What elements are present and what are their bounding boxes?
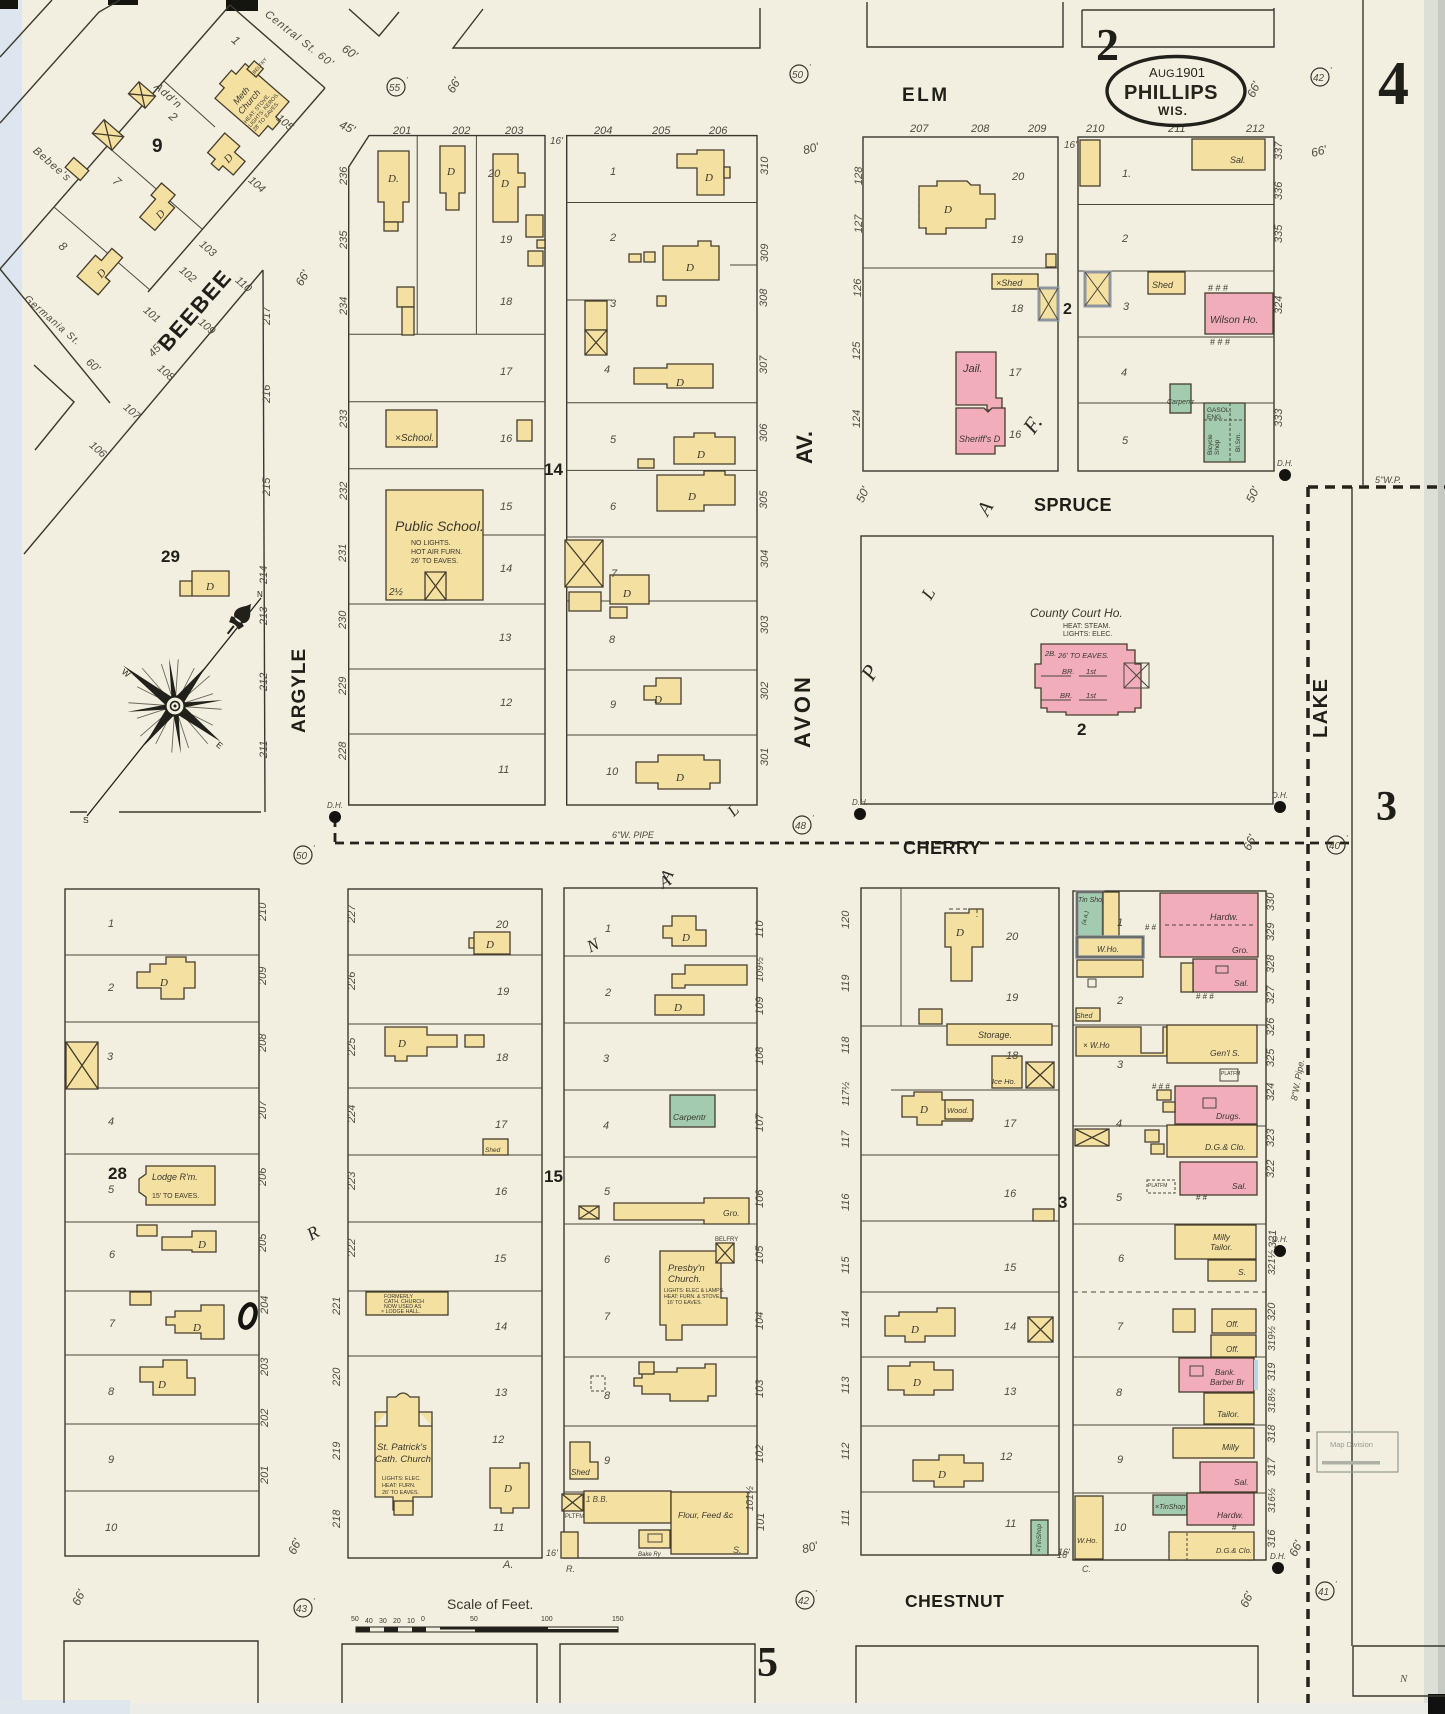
svg-text:220: 220 <box>331 1367 343 1387</box>
svg-text:×School.: ×School. <box>395 433 434 444</box>
svg-text:324: 324 <box>1273 296 1285 314</box>
svg-text:229: 229 <box>337 677 349 696</box>
svg-text:319½: 319½ <box>1267 1325 1278 1351</box>
svg-text:Gro.: Gro. <box>723 1208 740 1218</box>
svg-text:16': 16' <box>1058 1547 1070 1557</box>
svg-text:D: D <box>192 1322 201 1334</box>
svg-text:211: 211 <box>258 740 270 759</box>
svg-text:Sal.: Sal. <box>1232 1181 1247 1191</box>
svg-text:Map Division: Map Division <box>1330 1440 1373 1449</box>
svg-text:Bicycle: Bicycle <box>1207 434 1214 455</box>
svg-text:15: 15 <box>500 501 513 513</box>
svg-text:× W.Ho: × W.Ho <box>1083 1041 1110 1050</box>
svg-text:× LODGE HALL.: × LODGE HALL. <box>381 1309 420 1315</box>
svg-text:D: D <box>943 204 952 216</box>
svg-text:3: 3 <box>1123 301 1130 313</box>
svg-text:5"W.P.: 5"W.P. <box>1375 475 1401 485</box>
svg-text:308: 308 <box>758 288 770 307</box>
svg-text:ELM: ELM <box>902 85 950 106</box>
svg-text:2: 2 <box>609 232 616 244</box>
svg-text:6: 6 <box>109 1249 116 1261</box>
svg-text:4: 4 <box>604 364 610 376</box>
svg-text:117: 117 <box>840 1130 852 1148</box>
svg-text:Hardw.: Hardw. <box>1210 912 1238 922</box>
svg-text:3: 3 <box>1376 784 1397 830</box>
svg-text:202: 202 <box>451 125 470 137</box>
svg-text:S: S <box>83 815 89 825</box>
svg-text:Scale of Feet.: Scale of Feet. <box>447 1596 533 1612</box>
svg-text:BR.: BR. <box>1060 691 1073 700</box>
svg-text:210: 210 <box>1085 123 1105 135</box>
svg-text:CHERRY: CHERRY <box>903 838 981 858</box>
svg-text:15: 15 <box>1004 1262 1017 1274</box>
svg-text:Shed: Shed <box>571 1468 590 1477</box>
svg-text:14: 14 <box>500 563 512 575</box>
svg-text:1: 1 <box>605 923 611 935</box>
svg-text:100: 100 <box>541 1616 553 1623</box>
svg-text:HEAT: STEAM.: HEAT: STEAM. <box>1063 623 1110 630</box>
svg-text:LIGHTS: ELEC.: LIGHTS: ELEC. <box>1063 631 1112 638</box>
svg-text:LIGHTS: ELEC.: LIGHTS: ELEC. <box>382 1476 421 1482</box>
svg-text:7: 7 <box>604 1311 611 1323</box>
svg-text:Sal.: Sal. <box>1234 1477 1249 1487</box>
svg-text:114: 114 <box>840 1310 852 1328</box>
svg-text:228: 228 <box>337 741 349 761</box>
svg-text:PLATFM: PLATFM <box>1221 1071 1240 1077</box>
svg-text:R.: R. <box>566 1564 575 1574</box>
svg-text:202: 202 <box>259 1409 271 1428</box>
svg-text:17: 17 <box>1004 1118 1017 1130</box>
svg-text:207: 207 <box>909 123 929 135</box>
svg-text:# #: # # <box>1196 1193 1208 1202</box>
svg-text:2: 2 <box>1121 233 1128 245</box>
svg-text:D: D <box>197 1239 206 1251</box>
svg-text:N: N <box>257 590 263 599</box>
svg-text:D: D <box>446 166 455 178</box>
svg-text:BELFRY: BELFRY <box>715 1237 738 1243</box>
svg-text:306: 306 <box>758 423 770 442</box>
svg-text:10: 10 <box>1114 1522 1127 1534</box>
svg-text:215: 215 <box>261 477 273 497</box>
svg-text:19: 19 <box>497 986 509 998</box>
svg-text:109: 109 <box>754 997 766 1015</box>
svg-text:C.: C. <box>1082 1564 1091 1574</box>
svg-text:D.H.: D.H. <box>1270 1552 1286 1561</box>
svg-text:PLATFM: PLATFM <box>1148 1183 1167 1189</box>
svg-text:320: 320 <box>1266 1302 1278 1321</box>
svg-text:337: 337 <box>1273 141 1285 160</box>
svg-text:9: 9 <box>1117 1454 1123 1466</box>
svg-text:219: 219 <box>331 1442 343 1461</box>
svg-text:D: D <box>205 581 214 593</box>
svg-text:1st: 1st <box>1086 691 1097 700</box>
svg-text:4: 4 <box>1121 367 1127 379</box>
svg-text:Bake Ry: Bake Ry <box>638 1552 662 1558</box>
svg-text:231: 231 <box>337 544 349 563</box>
svg-text:D: D <box>937 1469 946 1481</box>
svg-text:40: 40 <box>1329 841 1341 852</box>
svg-text:D: D <box>503 1483 512 1495</box>
svg-text:43: 43 <box>296 1604 308 1615</box>
svg-text:20: 20 <box>487 168 501 180</box>
svg-text:2½: 2½ <box>388 587 404 598</box>
svg-text:230: 230 <box>337 610 349 630</box>
svg-text:BR.: BR. <box>1062 667 1075 676</box>
svg-text:212: 212 <box>1245 123 1264 135</box>
svg-text:1 B.B.: 1 B.B. <box>586 1495 608 1504</box>
svg-text:Shop: Shop <box>1214 439 1221 455</box>
svg-text:227: 227 <box>346 904 358 924</box>
svg-text:7: 7 <box>109 1318 116 1330</box>
svg-text:210: 210 <box>257 902 269 922</box>
svg-text:113: 113 <box>840 1376 852 1394</box>
svg-text:14: 14 <box>495 1321 507 1333</box>
svg-text:20: 20 <box>495 919 509 931</box>
svg-text:Jail.: Jail. <box>962 363 983 375</box>
svg-text:28: 28 <box>108 1164 127 1183</box>
svg-text:112: 112 <box>840 1442 852 1460</box>
svg-text:322: 322 <box>1265 1160 1277 1178</box>
svg-text:303: 303 <box>759 615 771 634</box>
svg-text:48: 48 <box>795 821 807 832</box>
svg-text:Presby'n: Presby'n <box>668 1263 705 1274</box>
svg-text:115: 115 <box>840 1256 852 1274</box>
svg-text:CHESTNUT: CHESTNUT <box>905 1591 1004 1611</box>
svg-text:41: 41 <box>1318 1587 1329 1598</box>
svg-text:Sal.: Sal. <box>1234 978 1249 988</box>
svg-text:Cath. Church.: Cath. Church. <box>375 1454 434 1465</box>
svg-text:3: 3 <box>107 1051 114 1063</box>
svg-text:Storage.: Storage. <box>978 1030 1012 1040</box>
svg-text:D.G.& Clo.: D.G.& Clo. <box>1205 1142 1246 1152</box>
svg-text:13: 13 <box>495 1387 508 1399</box>
svg-text:5: 5 <box>604 1186 611 1198</box>
svg-text:206: 206 <box>257 1167 269 1187</box>
svg-text:3: 3 <box>1117 1059 1124 1071</box>
svg-text:42: 42 <box>798 1596 810 1607</box>
svg-text:#: # <box>1232 1523 1237 1532</box>
svg-text:50: 50 <box>470 1616 478 1623</box>
svg-text:11: 11 <box>1005 1518 1016 1530</box>
svg-text:9: 9 <box>604 1455 610 1467</box>
svg-text:Carpentr: Carpentr <box>1167 399 1195 406</box>
svg-text:233: 233 <box>338 409 350 429</box>
svg-text:204: 204 <box>259 1296 271 1315</box>
svg-text:10: 10 <box>105 1522 118 1534</box>
svg-text:6: 6 <box>604 1254 611 1266</box>
svg-text:# #: # # <box>1145 923 1157 932</box>
svg-text:16': 16' <box>1064 140 1078 151</box>
svg-text:20: 20 <box>1005 931 1019 943</box>
svg-text:8: 8 <box>1116 1387 1123 1399</box>
svg-text:208: 208 <box>970 123 990 135</box>
svg-text:Shed: Shed <box>1076 1013 1093 1020</box>
svg-text:D: D <box>704 172 713 184</box>
svg-text:2: 2 <box>604 987 611 999</box>
svg-text:Carpentr: Carpentr <box>673 1112 707 1122</box>
svg-text:128: 128 <box>853 166 865 185</box>
svg-text:40: 40 <box>365 1618 373 1625</box>
svg-text:329: 329 <box>1265 923 1277 941</box>
svg-text:9: 9 <box>108 1454 114 1466</box>
svg-text:19: 19 <box>1006 992 1018 1004</box>
svg-text:30: 30 <box>379 1618 387 1625</box>
svg-text:29: 29 <box>161 547 180 566</box>
svg-text:4: 4 <box>603 1120 609 1132</box>
svg-text:D: D <box>397 1038 406 1050</box>
svg-text:209: 209 <box>257 967 269 986</box>
svg-text:1: 1 <box>108 918 114 930</box>
svg-text:D: D <box>622 588 631 600</box>
svg-text:19: 19 <box>500 234 512 246</box>
svg-text:D: D <box>157 1379 166 1391</box>
svg-text:Hardw.: Hardw. <box>1217 1510 1243 1520</box>
svg-text:17: 17 <box>1009 367 1022 379</box>
svg-text:# # #: # # # <box>1208 283 1228 293</box>
svg-text:2B.: 2B. <box>1044 649 1056 658</box>
svg-text:WIS.: WIS. <box>1158 104 1188 118</box>
svg-text:Shed: Shed <box>485 1147 501 1154</box>
svg-text:208: 208 <box>257 1033 269 1053</box>
svg-text:318½: 318½ <box>1267 1387 1278 1413</box>
svg-text:D: D <box>653 694 662 706</box>
svg-text:206: 206 <box>708 125 728 137</box>
svg-text:204: 204 <box>593 125 612 137</box>
svg-text:Sal.: Sal. <box>1230 155 1246 165</box>
svg-text:N: N <box>1399 1673 1408 1685</box>
svg-text:3: 3 <box>610 298 617 310</box>
svg-text:232: 232 <box>338 482 350 501</box>
svg-text:D: D <box>159 977 168 989</box>
svg-text:PLTFM: PLTFM <box>565 1514 584 1520</box>
svg-text:×TinShop: ×TinShop <box>1155 1504 1185 1511</box>
svg-text:PHILLIPS: PHILLIPS <box>1124 82 1218 104</box>
svg-text:7: 7 <box>1117 1321 1124 1333</box>
svg-text:201: 201 <box>259 1466 271 1485</box>
svg-text:1901: 1901 <box>1176 65 1205 80</box>
svg-text:Tailor.: Tailor. <box>1210 1242 1233 1252</box>
svg-text:42: 42 <box>1313 73 1325 84</box>
svg-text:330: 330 <box>1265 892 1277 911</box>
svg-text:County Court Ho.: County Court Ho. <box>1030 606 1123 620</box>
svg-text:119: 119 <box>840 974 852 992</box>
svg-text:6"W. PIPE: 6"W. PIPE <box>612 830 655 840</box>
svg-text:AV.: AV. <box>792 431 817 464</box>
svg-text:201: 201 <box>392 125 411 137</box>
svg-text:50: 50 <box>792 70 804 81</box>
svg-text:NO LIGHTS.: NO LIGHTS. <box>411 540 451 547</box>
svg-text:9: 9 <box>152 136 163 157</box>
svg-text:325: 325 <box>1265 1048 1277 1067</box>
svg-text:Flour, Feed &c: Flour, Feed &c <box>678 1510 734 1520</box>
svg-text:103: 103 <box>754 1379 766 1398</box>
svg-text:14: 14 <box>544 460 563 479</box>
svg-text:W.Ho.: W.Ho. <box>1077 1536 1098 1545</box>
svg-text:16: 16 <box>1009 429 1022 441</box>
svg-text:D.G.& Clo.: D.G.& Clo. <box>1216 1546 1252 1555</box>
svg-text:26' TO EAVES.: 26' TO EAVES. <box>1057 651 1109 660</box>
svg-text:D: D <box>681 932 690 944</box>
svg-text:101: 101 <box>755 1513 767 1531</box>
svg-text:16: 16 <box>495 1186 508 1198</box>
svg-text:16': 16' <box>546 1548 558 1558</box>
svg-text:105: 105 <box>754 1245 766 1264</box>
svg-text:Gen'l S.: Gen'l S. <box>1210 1048 1240 1058</box>
svg-text:15: 15 <box>494 1253 507 1265</box>
svg-text:Drugs.: Drugs. <box>1216 1111 1241 1121</box>
svg-text:D.H.: D.H. <box>1277 459 1293 468</box>
svg-text:207: 207 <box>257 1100 269 1120</box>
svg-text:18: 18 <box>496 1052 509 1064</box>
svg-text:223: 223 <box>346 1171 358 1191</box>
svg-text:1.: 1. <box>1122 168 1131 180</box>
svg-text:# # #: # # # <box>1152 1082 1170 1091</box>
svg-text:D: D <box>687 491 696 503</box>
svg-text:Off.: Off. <box>1226 1320 1239 1329</box>
svg-text:12: 12 <box>500 697 512 709</box>
svg-text:18: 18 <box>1006 1050 1019 1062</box>
svg-text:307: 307 <box>758 355 770 374</box>
svg-text:14: 14 <box>1004 1321 1016 1333</box>
svg-text:20: 20 <box>1011 171 1025 183</box>
svg-text:D: D <box>673 1002 682 1014</box>
svg-text:235: 235 <box>338 230 350 250</box>
svg-text:HEAT: FURN.: HEAT: FURN. <box>382 1483 416 1489</box>
svg-text:101½: 101½ <box>745 1485 756 1511</box>
svg-text:Tin Shop: Tin Shop <box>1078 897 1106 904</box>
svg-text:326: 326 <box>1265 1017 1277 1036</box>
svg-text:205: 205 <box>257 1233 269 1253</box>
svg-text:4: 4 <box>1378 50 1409 118</box>
svg-text:118: 118 <box>840 1036 852 1054</box>
svg-text:GASOL.: GASOL. <box>1207 407 1231 414</box>
svg-text:Church.: Church. <box>668 1274 701 1285</box>
svg-text:11: 11 <box>493 1522 504 1534</box>
svg-text:212: 212 <box>258 673 270 692</box>
svg-text:A: A <box>1149 65 1158 80</box>
svg-text:18: 18 <box>500 296 513 308</box>
svg-text:Sheriff's D: Sheriff's D <box>959 434 1001 444</box>
svg-text:D: D <box>675 772 684 784</box>
svg-text:16: 16 <box>500 433 513 445</box>
svg-text:12: 12 <box>1000 1451 1012 1463</box>
svg-text:D: D <box>955 927 964 939</box>
svg-text:16' TO EAVES.: 16' TO EAVES. <box>667 1300 702 1306</box>
svg-text:Wilson Ho.: Wilson Ho. <box>1210 315 1258 326</box>
svg-text:D: D <box>685 262 694 274</box>
svg-text:102: 102 <box>754 1445 766 1463</box>
svg-text:55: 55 <box>389 83 401 94</box>
svg-text:ENG.: ENG. <box>1207 414 1223 421</box>
svg-text:335: 335 <box>1273 224 1285 243</box>
svg-text:126: 126 <box>852 278 864 297</box>
svg-text:301: 301 <box>759 748 771 766</box>
svg-text:Bank.: Bank. <box>1215 1368 1235 1377</box>
svg-text:2: 2 <box>1096 19 1119 70</box>
svg-text:ARGYLE: ARGYLE <box>289 648 310 733</box>
svg-text:110: 110 <box>754 920 766 938</box>
svg-text:SPRUCE: SPRUCE <box>1034 495 1112 515</box>
svg-text:316: 316 <box>1266 1529 1278 1548</box>
svg-text:319: 319 <box>1266 1363 1278 1381</box>
svg-text:218: 218 <box>331 1509 343 1529</box>
svg-text:150: 150 <box>612 1616 624 1623</box>
svg-text:328: 328 <box>1265 954 1277 973</box>
svg-text:333: 333 <box>1273 408 1285 427</box>
svg-text:D.H.: D.H. <box>852 798 868 807</box>
svg-text:LAKE: LAKE <box>1310 678 1332 738</box>
svg-text:×TinShop: ×TinShop <box>1036 1524 1043 1552</box>
svg-text:7: 7 <box>611 568 618 580</box>
svg-text:# # #: # # # <box>1196 992 1214 1001</box>
svg-text:Public School.: Public School. <box>395 518 484 534</box>
svg-text:2: 2 <box>1116 995 1123 1007</box>
svg-text:225: 225 <box>346 1037 358 1057</box>
svg-text:3: 3 <box>603 1053 610 1065</box>
svg-text:309: 309 <box>759 244 771 262</box>
svg-text:125: 125 <box>851 341 863 360</box>
svg-text:17: 17 <box>495 1119 508 1131</box>
svg-text:205: 205 <box>651 125 671 137</box>
svg-text:17: 17 <box>500 366 513 378</box>
svg-text:209: 209 <box>1027 123 1046 135</box>
svg-text:222: 222 <box>346 1239 358 1258</box>
svg-text:13: 13 <box>499 632 512 644</box>
svg-text:16': 16' <box>550 136 564 147</box>
svg-text:5: 5 <box>1122 435 1129 447</box>
svg-text:Gro.: Gro. <box>1232 945 1249 955</box>
svg-text:10: 10 <box>407 1618 415 1625</box>
svg-text:203: 203 <box>504 125 524 137</box>
svg-text:117½: 117½ <box>841 1081 852 1106</box>
svg-text:236: 236 <box>338 166 350 186</box>
svg-text:3: 3 <box>1058 1193 1067 1212</box>
svg-text:120: 120 <box>840 910 852 929</box>
svg-text:15: 15 <box>544 1167 563 1186</box>
svg-text:UG.: UG. <box>1158 68 1178 80</box>
svg-text:D: D <box>912 1377 921 1389</box>
svg-text:8: 8 <box>604 1390 611 1402</box>
svg-text:D: D <box>919 1104 928 1116</box>
svg-text:S.: S. <box>1238 1267 1246 1277</box>
svg-text:Shed: Shed <box>1152 280 1174 290</box>
svg-text:12: 12 <box>492 1434 504 1446</box>
svg-text:310: 310 <box>759 156 771 175</box>
svg-text:8: 8 <box>108 1386 115 1398</box>
svg-text:Milly: Milly <box>1213 1232 1231 1242</box>
svg-text:50: 50 <box>351 1616 359 1623</box>
svg-text:203: 203 <box>259 1357 271 1377</box>
svg-text:8: 8 <box>609 634 616 646</box>
svg-text:108: 108 <box>754 1046 766 1065</box>
svg-text:305: 305 <box>758 490 770 509</box>
svg-text:2: 2 <box>1077 720 1086 739</box>
svg-text:HOT AIR FURN.: HOT AIR FURN. <box>411 549 462 556</box>
svg-text:127: 127 <box>853 214 865 233</box>
svg-text:1: 1 <box>610 166 616 178</box>
svg-text:304: 304 <box>759 550 771 568</box>
svg-text:224: 224 <box>346 1105 358 1124</box>
svg-text:Ice Ho.: Ice Ho. <box>992 1077 1016 1086</box>
svg-text:Tailor.: Tailor. <box>1217 1409 1240 1419</box>
svg-text:109½: 109½ <box>755 956 766 982</box>
svg-text:5: 5 <box>757 1640 778 1686</box>
svg-text:Barber Br: Barber Br <box>1210 1378 1245 1387</box>
svg-text:6: 6 <box>610 501 617 513</box>
svg-text:1st: 1st <box>1086 667 1097 676</box>
svg-text:AVON: AVON <box>790 674 815 748</box>
svg-text:5: 5 <box>1116 1192 1123 1204</box>
